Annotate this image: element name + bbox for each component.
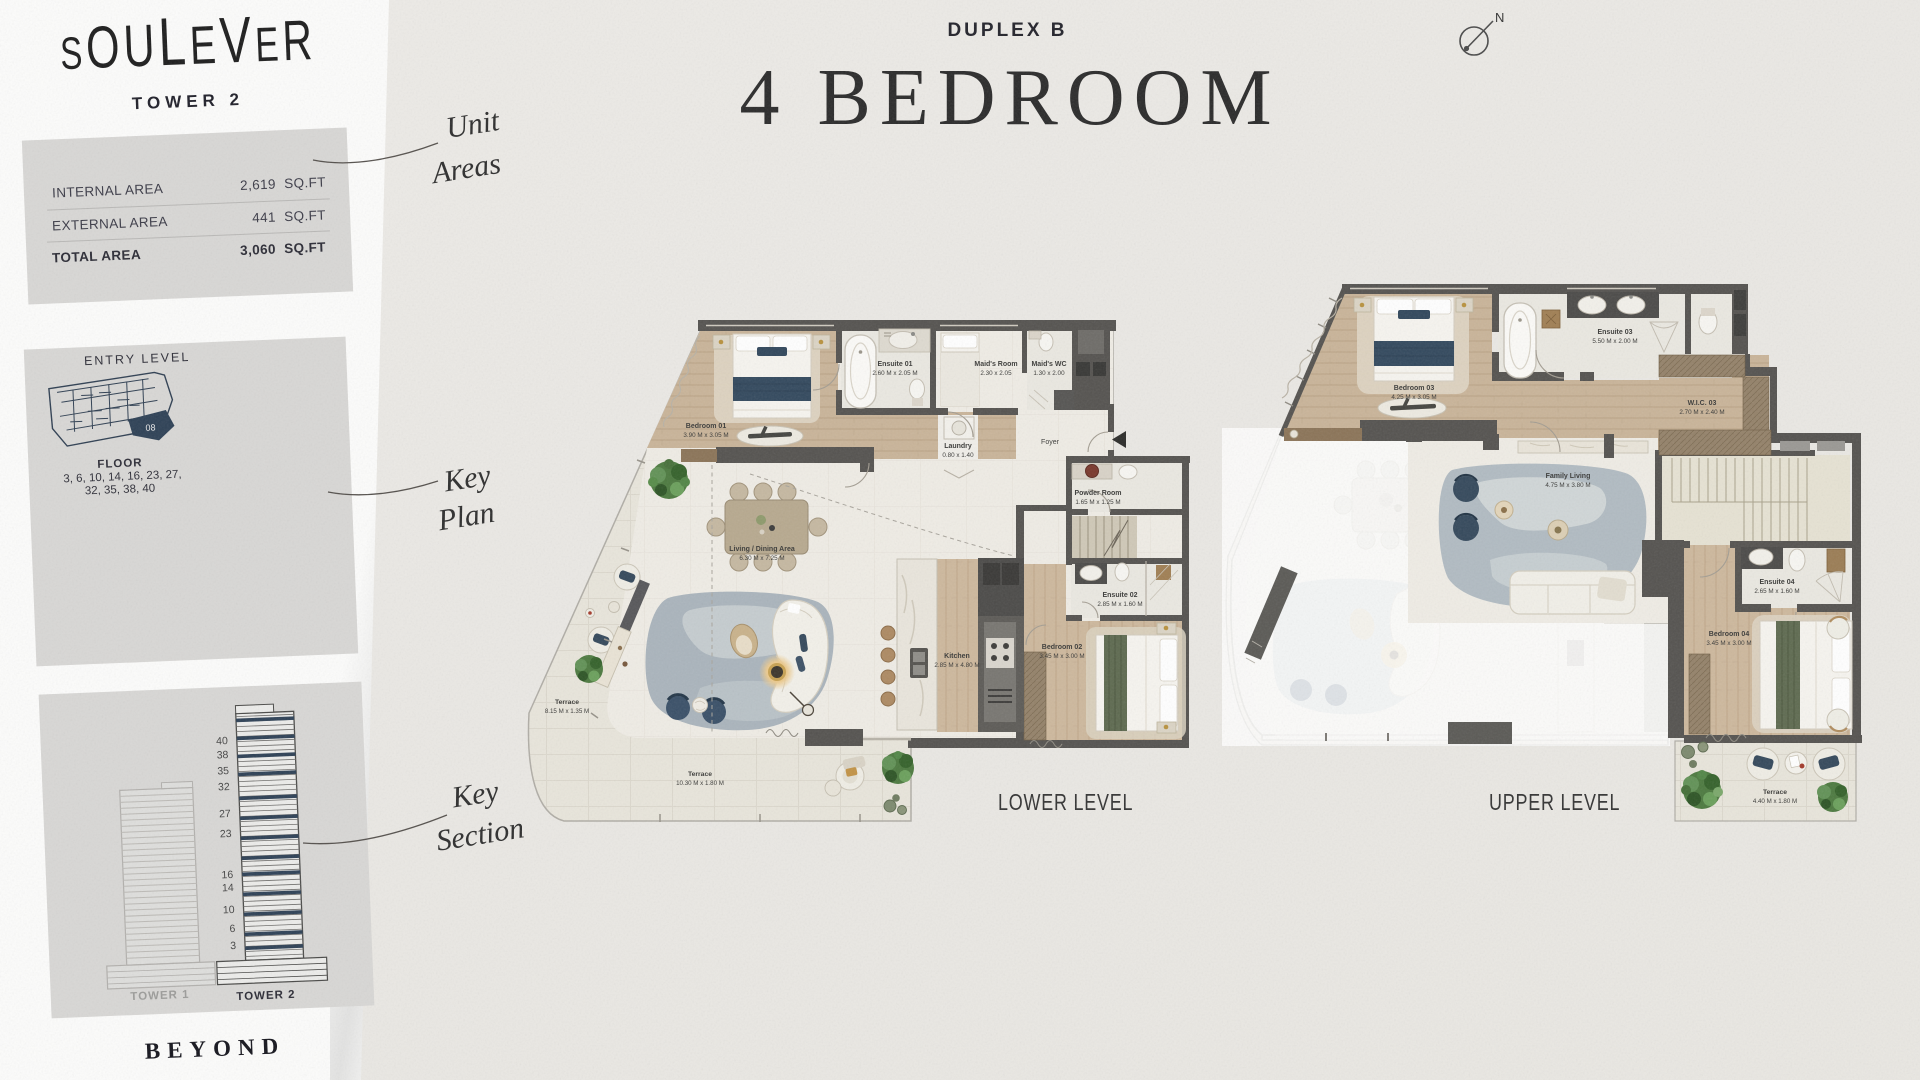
svg-text:10.30 M x 1.80 M: 10.30 M x 1.80 M — [676, 780, 724, 787]
svg-text:3.45 M x 3.00 M: 3.45 M x 3.00 M — [1706, 640, 1751, 647]
svg-text:8.15 M x 1.35 M: 8.15 M x 1.35 M — [545, 708, 589, 715]
svg-text:Bedroom 02: Bedroom 02 — [1042, 644, 1083, 651]
svg-text:1.30 x 2.00: 1.30 x 2.00 — [1033, 370, 1065, 377]
svg-text:Bedroom 04: Bedroom 04 — [1709, 631, 1750, 638]
svg-text:3.45 M x 3.00 M: 3.45 M x 3.00 M — [1039, 653, 1084, 660]
svg-text:Family Living: Family Living — [1546, 473, 1591, 480]
svg-text:Laundry: Laundry — [944, 443, 972, 450]
svg-text:Living / Dining Area: Living / Dining Area — [729, 546, 795, 553]
svg-text:2.60 M x 2.05 M: 2.60 M x 2.05 M — [872, 370, 917, 377]
svg-text:Ensuite 03: Ensuite 03 — [1597, 329, 1632, 336]
svg-text:5.50 M x 2.00 M: 5.50 M x 2.00 M — [1592, 338, 1637, 345]
svg-text:Bedroom 03: Bedroom 03 — [1394, 385, 1435, 392]
svg-text:4.25 M x 3.05 M: 4.25 M x 3.05 M — [1391, 394, 1436, 401]
svg-text:2.85 M x 1.60 M: 2.85 M x 1.60 M — [1097, 601, 1142, 608]
svg-text:0.80 x 1.40: 0.80 x 1.40 — [942, 452, 974, 459]
svg-text:2.70 M x 2.40 M: 2.70 M x 2.40 M — [1679, 409, 1724, 416]
svg-text:W.I.C. 03: W.I.C. 03 — [1688, 400, 1717, 407]
svg-text:Terrace: Terrace — [555, 699, 579, 706]
svg-text:4.40 M x 1.80 M: 4.40 M x 1.80 M — [1753, 798, 1797, 805]
svg-text:3.90 M x 3.05 M: 3.90 M x 3.05 M — [683, 432, 728, 439]
svg-text:2.65 M x 1.60 M: 2.65 M x 1.60 M — [1754, 588, 1799, 595]
svg-text:Bedroom 01: Bedroom 01 — [686, 423, 727, 430]
svg-text:Maid's WC: Maid's WC — [1031, 361, 1066, 368]
svg-text:Powder Room: Powder Room — [1074, 490, 1121, 497]
svg-text:4.75 M x 3.80 M: 4.75 M x 3.80 M — [1545, 482, 1590, 489]
svg-text:Maid's Room: Maid's Room — [974, 361, 1017, 368]
svg-text:Ensuite 02: Ensuite 02 — [1102, 592, 1137, 599]
svg-text:Ensuite 01: Ensuite 01 — [877, 361, 912, 368]
svg-text:Kitchen: Kitchen — [944, 653, 970, 660]
svg-text:Foyer: Foyer — [1041, 439, 1060, 446]
svg-text:1.65 M x 1.25 M: 1.65 M x 1.25 M — [1075, 499, 1120, 506]
svg-text:2.85 M x 4.80 M: 2.85 M x 4.80 M — [934, 662, 979, 669]
svg-text:Terrace: Terrace — [688, 771, 712, 778]
svg-text:Ensuite 04: Ensuite 04 — [1759, 579, 1794, 586]
svg-text:6.30 M x 7.25 M: 6.30 M x 7.25 M — [739, 555, 784, 562]
svg-text:2.30 x 2.05: 2.30 x 2.05 — [980, 370, 1012, 377]
svg-text:Terrace: Terrace — [1763, 789, 1787, 796]
